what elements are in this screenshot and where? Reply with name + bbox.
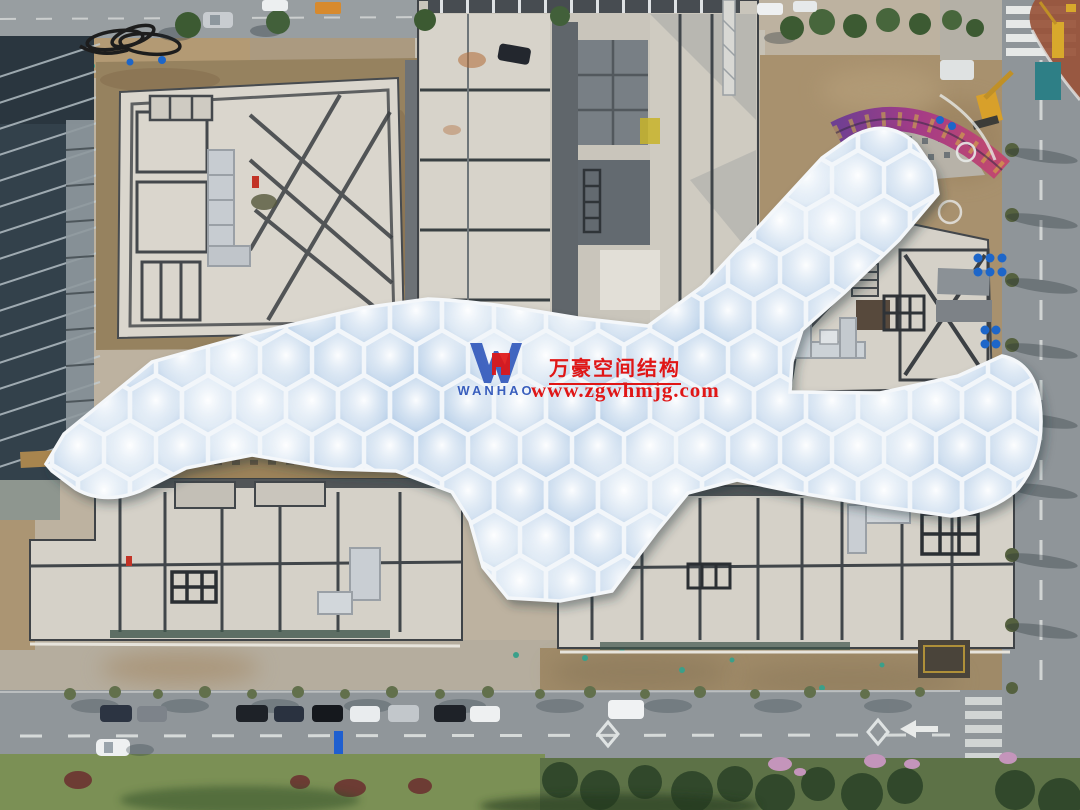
aerial-construction-photo: WANHAO 万豪空间结构 www.zgwhmjg.com — [0, 0, 1080, 810]
loader-machine — [315, 2, 341, 14]
car — [203, 12, 233, 28]
container — [1035, 62, 1061, 100]
scene-svg — [0, 0, 1080, 810]
